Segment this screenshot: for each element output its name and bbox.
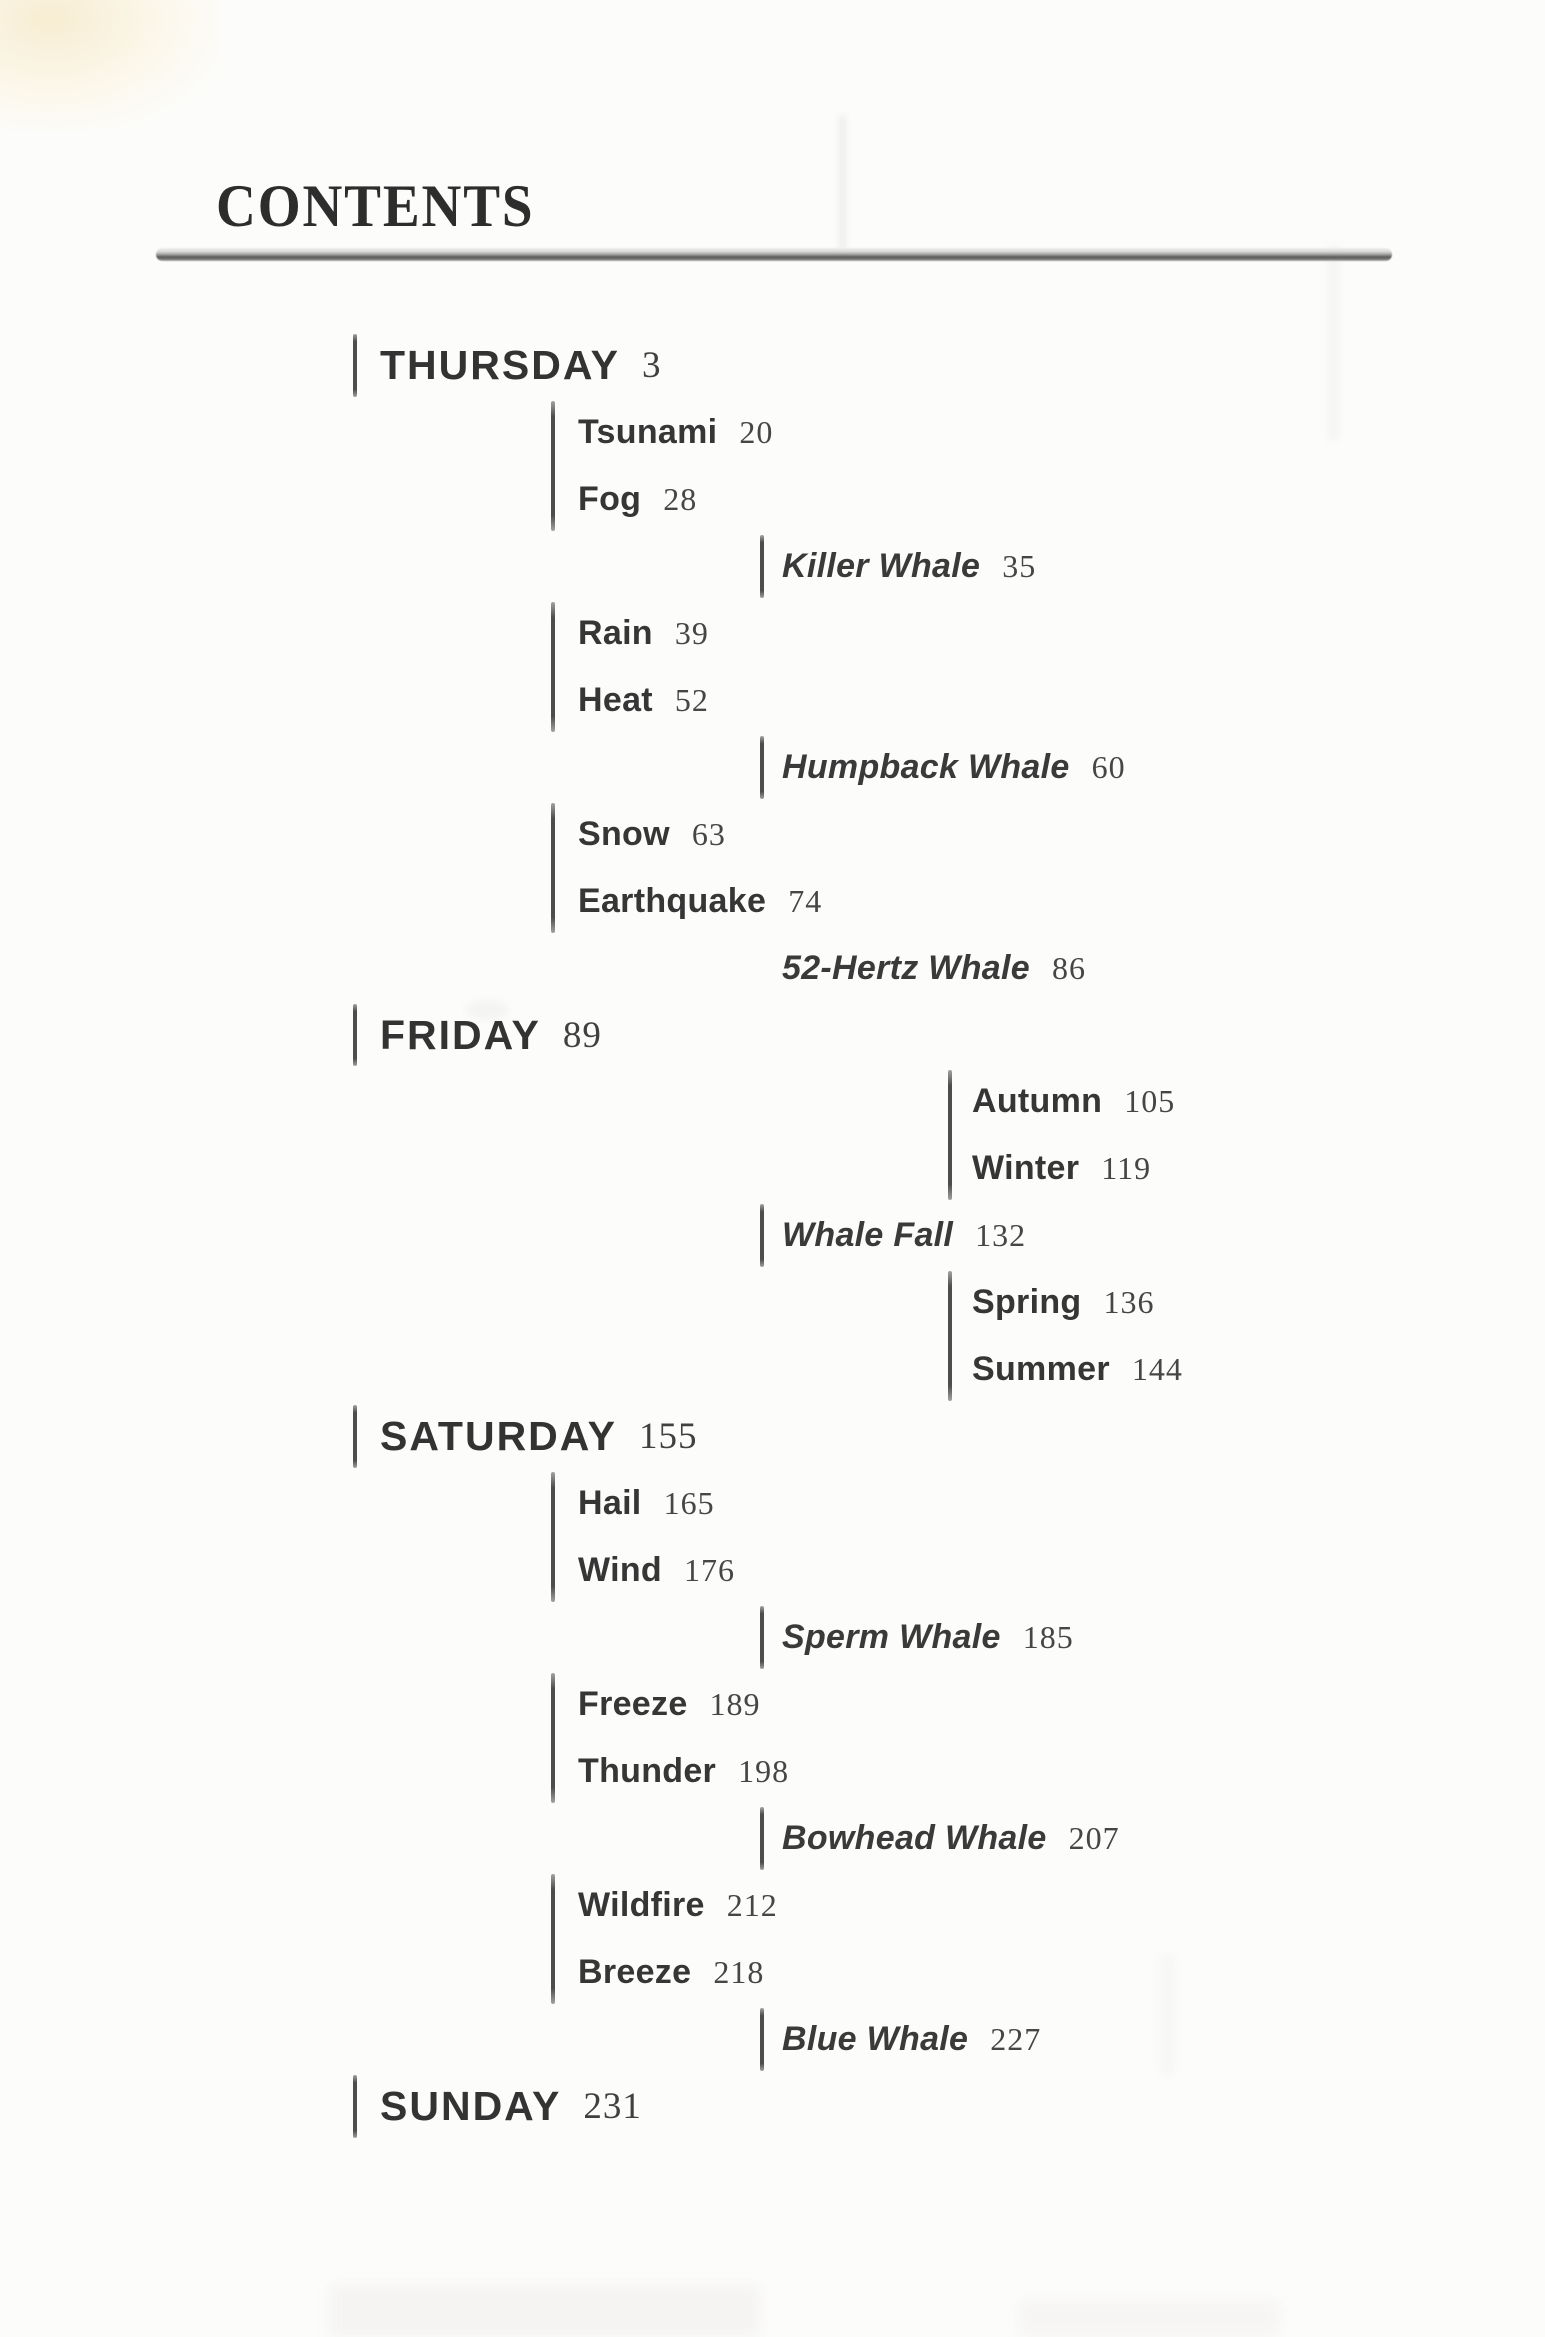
toc-entry-page-number: 136	[1103, 1284, 1154, 1321]
toc-entry-page-number: 63	[692, 816, 726, 853]
toc-bracket-bar	[551, 401, 555, 531]
toc-entry-page-number: 144	[1132, 1351, 1183, 1388]
toc-entry-label: FRIDAY	[380, 1012, 541, 1059]
toc-bracket-bar	[760, 2008, 764, 2071]
toc-entry-sunday: SUNDAY231	[380, 2073, 642, 2140]
toc-bracket-bar	[551, 1874, 555, 2004]
toc-entry-page-number: 176	[684, 1552, 735, 1589]
toc-entry-label: Killer Whale	[782, 547, 980, 586]
toc-entry-hail: Hail165	[578, 1470, 715, 1537]
toc-entry-page-number: 86	[1052, 950, 1086, 987]
toc-entry-label: Wind	[578, 1551, 662, 1590]
toc-entry-label: Breeze	[578, 1953, 691, 1992]
toc-bracket-bar	[353, 334, 357, 397]
toc-entry-label: THURSDAY	[380, 342, 620, 389]
toc-entry-page-number: 207	[1069, 1820, 1120, 1857]
toc-entry-label: Tsunami	[578, 413, 717, 452]
toc-entry-label: Autumn	[972, 1082, 1102, 1121]
toc-entry-label: Spring	[972, 1283, 1081, 1322]
toc-entry-label: Snow	[578, 815, 670, 854]
toc-entry-page-number: 89	[563, 1014, 602, 1057]
toc-entry-label: Bowhead Whale	[782, 1819, 1047, 1858]
toc-entry-page-number: 218	[713, 1954, 764, 1991]
table-of-contents: THURSDAY3Tsunami20Fog28Killer Whale35Rai…	[0, 0, 1545, 2337]
toc-bracket-bar	[353, 2075, 357, 2138]
toc-bracket-bar	[948, 1070, 952, 1200]
toc-entry-label: Humpback Whale	[782, 748, 1070, 787]
toc-entry-saturday: SATURDAY155	[380, 1403, 697, 1470]
toc-entry-label: Whale Fall	[782, 1216, 953, 1255]
toc-entry-page-number: 39	[675, 615, 709, 652]
toc-entry-thunder: Thunder198	[578, 1738, 789, 1805]
toc-entry-page-number: 119	[1101, 1150, 1151, 1187]
toc-entry-label: Blue Whale	[782, 2020, 968, 2059]
toc-entry-killer-whale: Killer Whale35	[782, 533, 1036, 600]
toc-bracket-bar	[353, 1004, 357, 1067]
toc-bracket-bar	[760, 736, 764, 799]
toc-entry-page-number: 185	[1023, 1619, 1074, 1656]
toc-entry-label: SUNDAY	[380, 2083, 561, 2130]
toc-entry-label: Fog	[578, 480, 641, 519]
toc-entry-page-number: 227	[990, 2021, 1041, 2058]
toc-entry-winter: Winter119	[972, 1135, 1151, 1202]
toc-entry-blue-whale: Blue Whale227	[782, 2006, 1041, 2073]
toc-entry-friday: FRIDAY89	[380, 1002, 602, 1069]
toc-entry-label: SATURDAY	[380, 1413, 617, 1460]
toc-entry-page-number: 212	[727, 1887, 778, 1924]
toc-bracket-bar	[760, 1807, 764, 1870]
toc-entry-breeze: Breeze218	[578, 1939, 764, 2006]
toc-bracket-bar	[948, 1271, 952, 1401]
toc-bracket-bar	[551, 1673, 555, 1803]
toc-entry-label: Heat	[578, 681, 653, 720]
toc-entry-rain: Rain39	[578, 600, 709, 667]
toc-entry-page-number: 132	[975, 1217, 1026, 1254]
toc-entry-sperm-whale: Sperm Whale185	[782, 1604, 1074, 1671]
toc-entry-humpback-whale: Humpback Whale60	[782, 734, 1126, 801]
toc-bracket-bar	[760, 535, 764, 598]
toc-bracket-bar	[551, 803, 555, 933]
toc-bracket-bar	[760, 1606, 764, 1669]
toc-entry-page-number: 28	[663, 481, 697, 518]
toc-entry-autumn: Autumn105	[972, 1068, 1175, 1135]
toc-entry-page-number: 231	[583, 2085, 642, 2128]
toc-entry-label: Thunder	[578, 1752, 716, 1791]
toc-entry-heat: Heat52	[578, 667, 709, 734]
toc-entry-whale-fall: Whale Fall132	[782, 1202, 1026, 1269]
toc-entry-page-number: 74	[788, 883, 822, 920]
toc-entry-wind: Wind176	[578, 1537, 735, 1604]
toc-bracket-bar	[760, 1204, 764, 1267]
toc-entry-fog: Fog28	[578, 466, 697, 533]
toc-entry-bowhead-whale: Bowhead Whale207	[782, 1805, 1120, 1872]
toc-entry-tsunami: Tsunami20	[578, 399, 773, 466]
toc-entry-spring: Spring136	[972, 1269, 1154, 1336]
toc-entry-page-number: 20	[739, 414, 773, 451]
toc-entry-summer: Summer144	[972, 1336, 1183, 1403]
toc-entry-page-number: 198	[738, 1753, 789, 1790]
toc-entry-freeze: Freeze189	[578, 1671, 761, 1738]
toc-entry-snow: Snow63	[578, 801, 726, 868]
toc-entry-page-number: 189	[710, 1686, 761, 1723]
toc-entry-page-number: 165	[664, 1485, 715, 1522]
toc-entry-label: Wildfire	[578, 1886, 705, 1925]
toc-entry-label: Hail	[578, 1484, 642, 1523]
toc-bracket-bar	[353, 1405, 357, 1468]
toc-bracket-bar	[551, 602, 555, 732]
toc-entry-label: Summer	[972, 1350, 1110, 1389]
toc-entry-label: Rain	[578, 614, 653, 653]
toc-entry-label: 52-Hertz Whale	[782, 949, 1030, 988]
toc-entry-label: Winter	[972, 1149, 1079, 1188]
toc-entry-page-number: 35	[1002, 548, 1036, 585]
toc-entry-thursday: THURSDAY3	[380, 332, 662, 399]
toc-entry-earthquake: Earthquake74	[578, 868, 822, 935]
toc-entry-page-number: 52	[675, 682, 709, 719]
toc-entry-page-number: 60	[1092, 749, 1126, 786]
toc-entry-page-number: 155	[639, 1415, 698, 1458]
toc-bracket-bar	[551, 1472, 555, 1602]
scanned-contents-page: CONTENTS THURSDAY3Tsunami20Fog28Killer W…	[0, 0, 1545, 2337]
toc-entry-label: Freeze	[578, 1685, 688, 1724]
toc-entry-page-number: 3	[642, 344, 662, 387]
toc-entry-label: Earthquake	[578, 882, 766, 921]
toc-entry-52-hertz-whale: 52-Hertz Whale86	[782, 935, 1086, 1002]
toc-entry-label: Sperm Whale	[782, 1618, 1001, 1657]
toc-entry-page-number: 105	[1124, 1083, 1175, 1120]
toc-entry-wildfire: Wildfire212	[578, 1872, 778, 1939]
